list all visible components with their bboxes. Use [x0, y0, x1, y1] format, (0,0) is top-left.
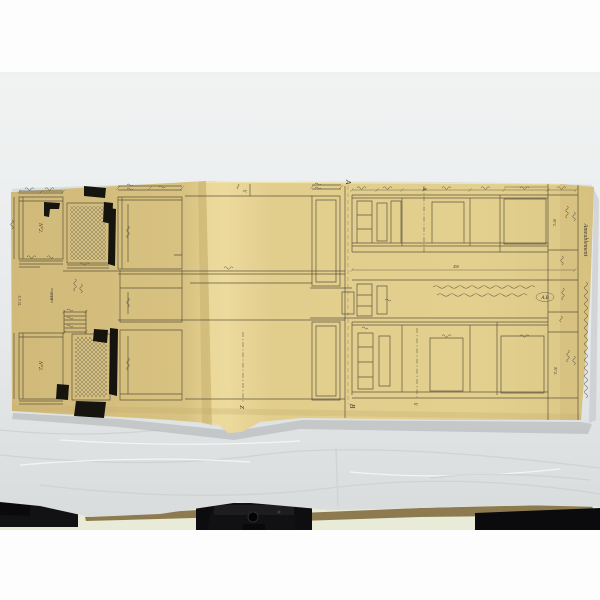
part-label-left-upper: N°2.	[37, 222, 44, 233]
part-label-margin-lower: N°2.	[553, 366, 558, 375]
band-transition	[0, 72, 600, 75]
hatched-section-upper	[70, 206, 106, 260]
section-label-a: A	[344, 179, 353, 185]
part-label-left-lower: N°2.	[37, 360, 44, 371]
date-code: 5.7.31.	[17, 296, 22, 307]
photo-top-band	[0, 0, 600, 73]
photograph: A B X Y Y Z N°2. N°2. N°1. N°2. A.B 450 …	[0, 0, 600, 600]
title-script: Ameublement	[582, 223, 588, 257]
axis-label-z: Z	[238, 405, 245, 409]
mount-screw	[278, 511, 281, 514]
ref-label-ab: A.B	[540, 296, 548, 301]
hatched-section-lower	[75, 337, 107, 397]
mount-knob	[248, 512, 258, 522]
photo-bottom-band	[0, 530, 600, 600]
section-label-b: B	[348, 404, 357, 409]
photo-canvas: A B X Y Y Z N°2. N°2. N°1. N°2. A.B 450 …	[0, 0, 600, 600]
scale-label: 1/10	[49, 292, 54, 301]
axis-label-x: X	[421, 186, 427, 191]
part-label-margin-upper: N°1.	[552, 218, 557, 227]
dim-overall: 450	[453, 265, 459, 269]
camera-mount-hardware	[196, 503, 312, 532]
